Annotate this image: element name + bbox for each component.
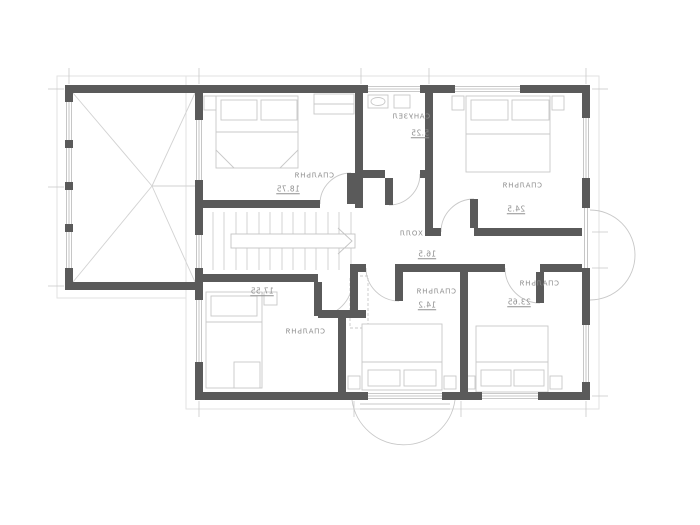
room-area-hall: 16.5	[418, 250, 436, 258]
room-area-bedroom-top-left: 18.75	[276, 185, 299, 193]
wardrobe-top-left	[314, 94, 354, 114]
french-door-right	[585, 208, 588, 268]
stairs	[213, 212, 355, 270]
window-left-top-bedroom	[197, 120, 202, 180]
window-left-stairs	[197, 235, 202, 268]
bathroom-fixtures	[368, 95, 410, 108]
room-area-bedroom-top-right: 24.5	[507, 205, 525, 213]
nightstand	[550, 376, 562, 389]
room-area-bathroom: 5.25	[411, 129, 429, 137]
bed-bottom-middle	[362, 324, 442, 390]
window-bottom-right-bedroom	[482, 394, 538, 399]
room-label-bathroom: САНУЗЕЛ	[392, 114, 430, 121]
room-area-bedroom-bottom-left: 17.55	[250, 287, 273, 295]
bed-bottom-right	[476, 326, 548, 392]
window-top-bathroom	[368, 87, 420, 92]
window-bottom-middle-bedroom	[368, 394, 442, 399]
window-right-bottom-bedroom	[584, 325, 589, 382]
window-top-right-bedroom	[455, 87, 520, 92]
room-label-hall: ХОЛЛ	[399, 231, 423, 238]
window-right-top-bedroom	[584, 118, 589, 178]
french-door-arc-right	[590, 210, 635, 300]
window-left-bottom-bedroom	[197, 300, 202, 362]
room-label-bedroom-bottom-right: СПАЛЬНЯ	[519, 281, 559, 288]
nightstand	[452, 96, 464, 110]
room-label-bedroom-bottom-middle: СПАЛЬНЯ	[416, 289, 456, 296]
bed-top-left	[216, 96, 298, 168]
room-label-bedroom-top-right: СПАЛЬНЯ	[502, 183, 542, 190]
door-arc-bathroom	[389, 174, 420, 205]
door-arc-bedroom-bottom-middle	[366, 268, 399, 301]
door-arc-bedroom-top-right	[441, 199, 474, 232]
dresser-bottom-left	[234, 362, 260, 388]
stair-stringer	[231, 234, 355, 248]
nightstand	[444, 376, 456, 389]
nightstand	[552, 96, 564, 110]
nightstand	[204, 96, 216, 110]
floor-plan-drawing	[0, 0, 700, 525]
room-label-bedroom-bottom-left: СПАЛЬНЯ	[285, 329, 325, 336]
nightstand	[348, 376, 360, 389]
room-label-bedroom-top-left: СПАЛЬНЯ	[294, 173, 334, 180]
bed-top-right	[466, 96, 550, 172]
porch-arc-bottom	[352, 400, 455, 445]
room-area-bedroom-bottom-middle: 14.2	[418, 301, 436, 309]
annex-roof	[73, 93, 195, 282]
room-area-bedroom-bottom-right: 23.65	[507, 298, 530, 306]
floor-plan-canvas: СПАЛЬНЯ 18.75 САНУЗЕЛ 5.25 СПАЛЬНЯ 24.5 …	[0, 0, 700, 525]
